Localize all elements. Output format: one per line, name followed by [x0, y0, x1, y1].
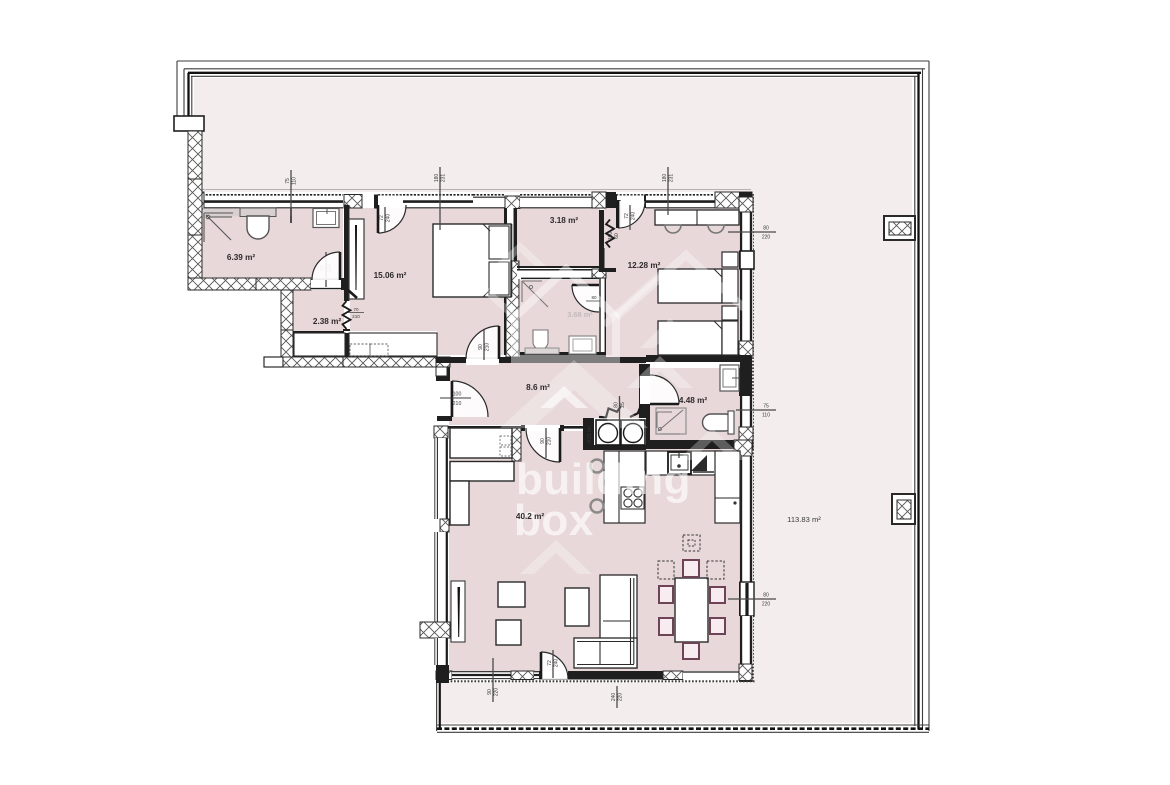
svg-text:80: 80 [763, 226, 769, 232]
svg-text:210: 210 [547, 437, 553, 446]
svg-text:240: 240 [554, 659, 560, 668]
svg-text:210: 210 [485, 343, 491, 352]
svg-text:100: 100 [453, 392, 462, 398]
svg-text:231: 231 [441, 174, 447, 183]
svg-text:80: 80 [591, 295, 597, 300]
svg-text:75: 75 [763, 404, 769, 410]
svg-text:80: 80 [763, 593, 769, 599]
svg-text:240: 240 [631, 212, 637, 221]
svg-text:110: 110 [762, 412, 770, 418]
svg-text:4.48 m²: 4.48 m² [679, 396, 707, 405]
svg-text:8.6 m²: 8.6 m² [526, 383, 550, 392]
svg-text:220: 220 [762, 601, 771, 607]
svg-text:6.39 m²: 6.39 m² [227, 253, 255, 262]
svg-text:25: 25 [620, 402, 626, 408]
svg-text:220: 220 [618, 693, 624, 702]
svg-text:231: 231 [669, 174, 675, 183]
svg-text:220: 220 [762, 234, 771, 240]
svg-text:72: 72 [379, 215, 385, 221]
svg-text:3.18 m²: 3.18 m² [550, 216, 578, 225]
svg-text:72: 72 [547, 660, 553, 666]
svg-text:90: 90 [540, 438, 546, 444]
svg-text:240: 240 [611, 693, 617, 702]
svg-text:3.68 m²: 3.68 m² [567, 310, 593, 319]
svg-text:90: 90 [487, 689, 493, 695]
svg-text:12.28 m²: 12.28 m² [628, 261, 661, 270]
svg-text:180: 180 [662, 174, 668, 183]
svg-text:40.2 m²: 40.2 m² [516, 512, 544, 521]
svg-text:220: 220 [494, 688, 500, 697]
svg-text:80: 80 [613, 402, 619, 408]
svg-text:0.91 m²: 0.91 m² [587, 426, 593, 443]
svg-text:180: 180 [434, 174, 440, 183]
svg-text:113.83 m²: 113.83 m² [787, 515, 821, 524]
svg-text:210: 210 [453, 401, 462, 407]
svg-text:2.38 m²: 2.38 m² [313, 317, 341, 326]
svg-text:240: 240 [386, 214, 392, 223]
svg-text:110: 110 [292, 177, 298, 185]
svg-text:15.06 m²: 15.06 m² [374, 271, 407, 280]
svg-text:72: 72 [624, 213, 630, 219]
svg-text:70: 70 [353, 307, 359, 312]
svg-text:60: 60 [614, 233, 620, 239]
svg-text:90: 90 [478, 344, 484, 350]
svg-text:210: 210 [352, 314, 360, 319]
svg-text:75: 75 [285, 178, 291, 184]
